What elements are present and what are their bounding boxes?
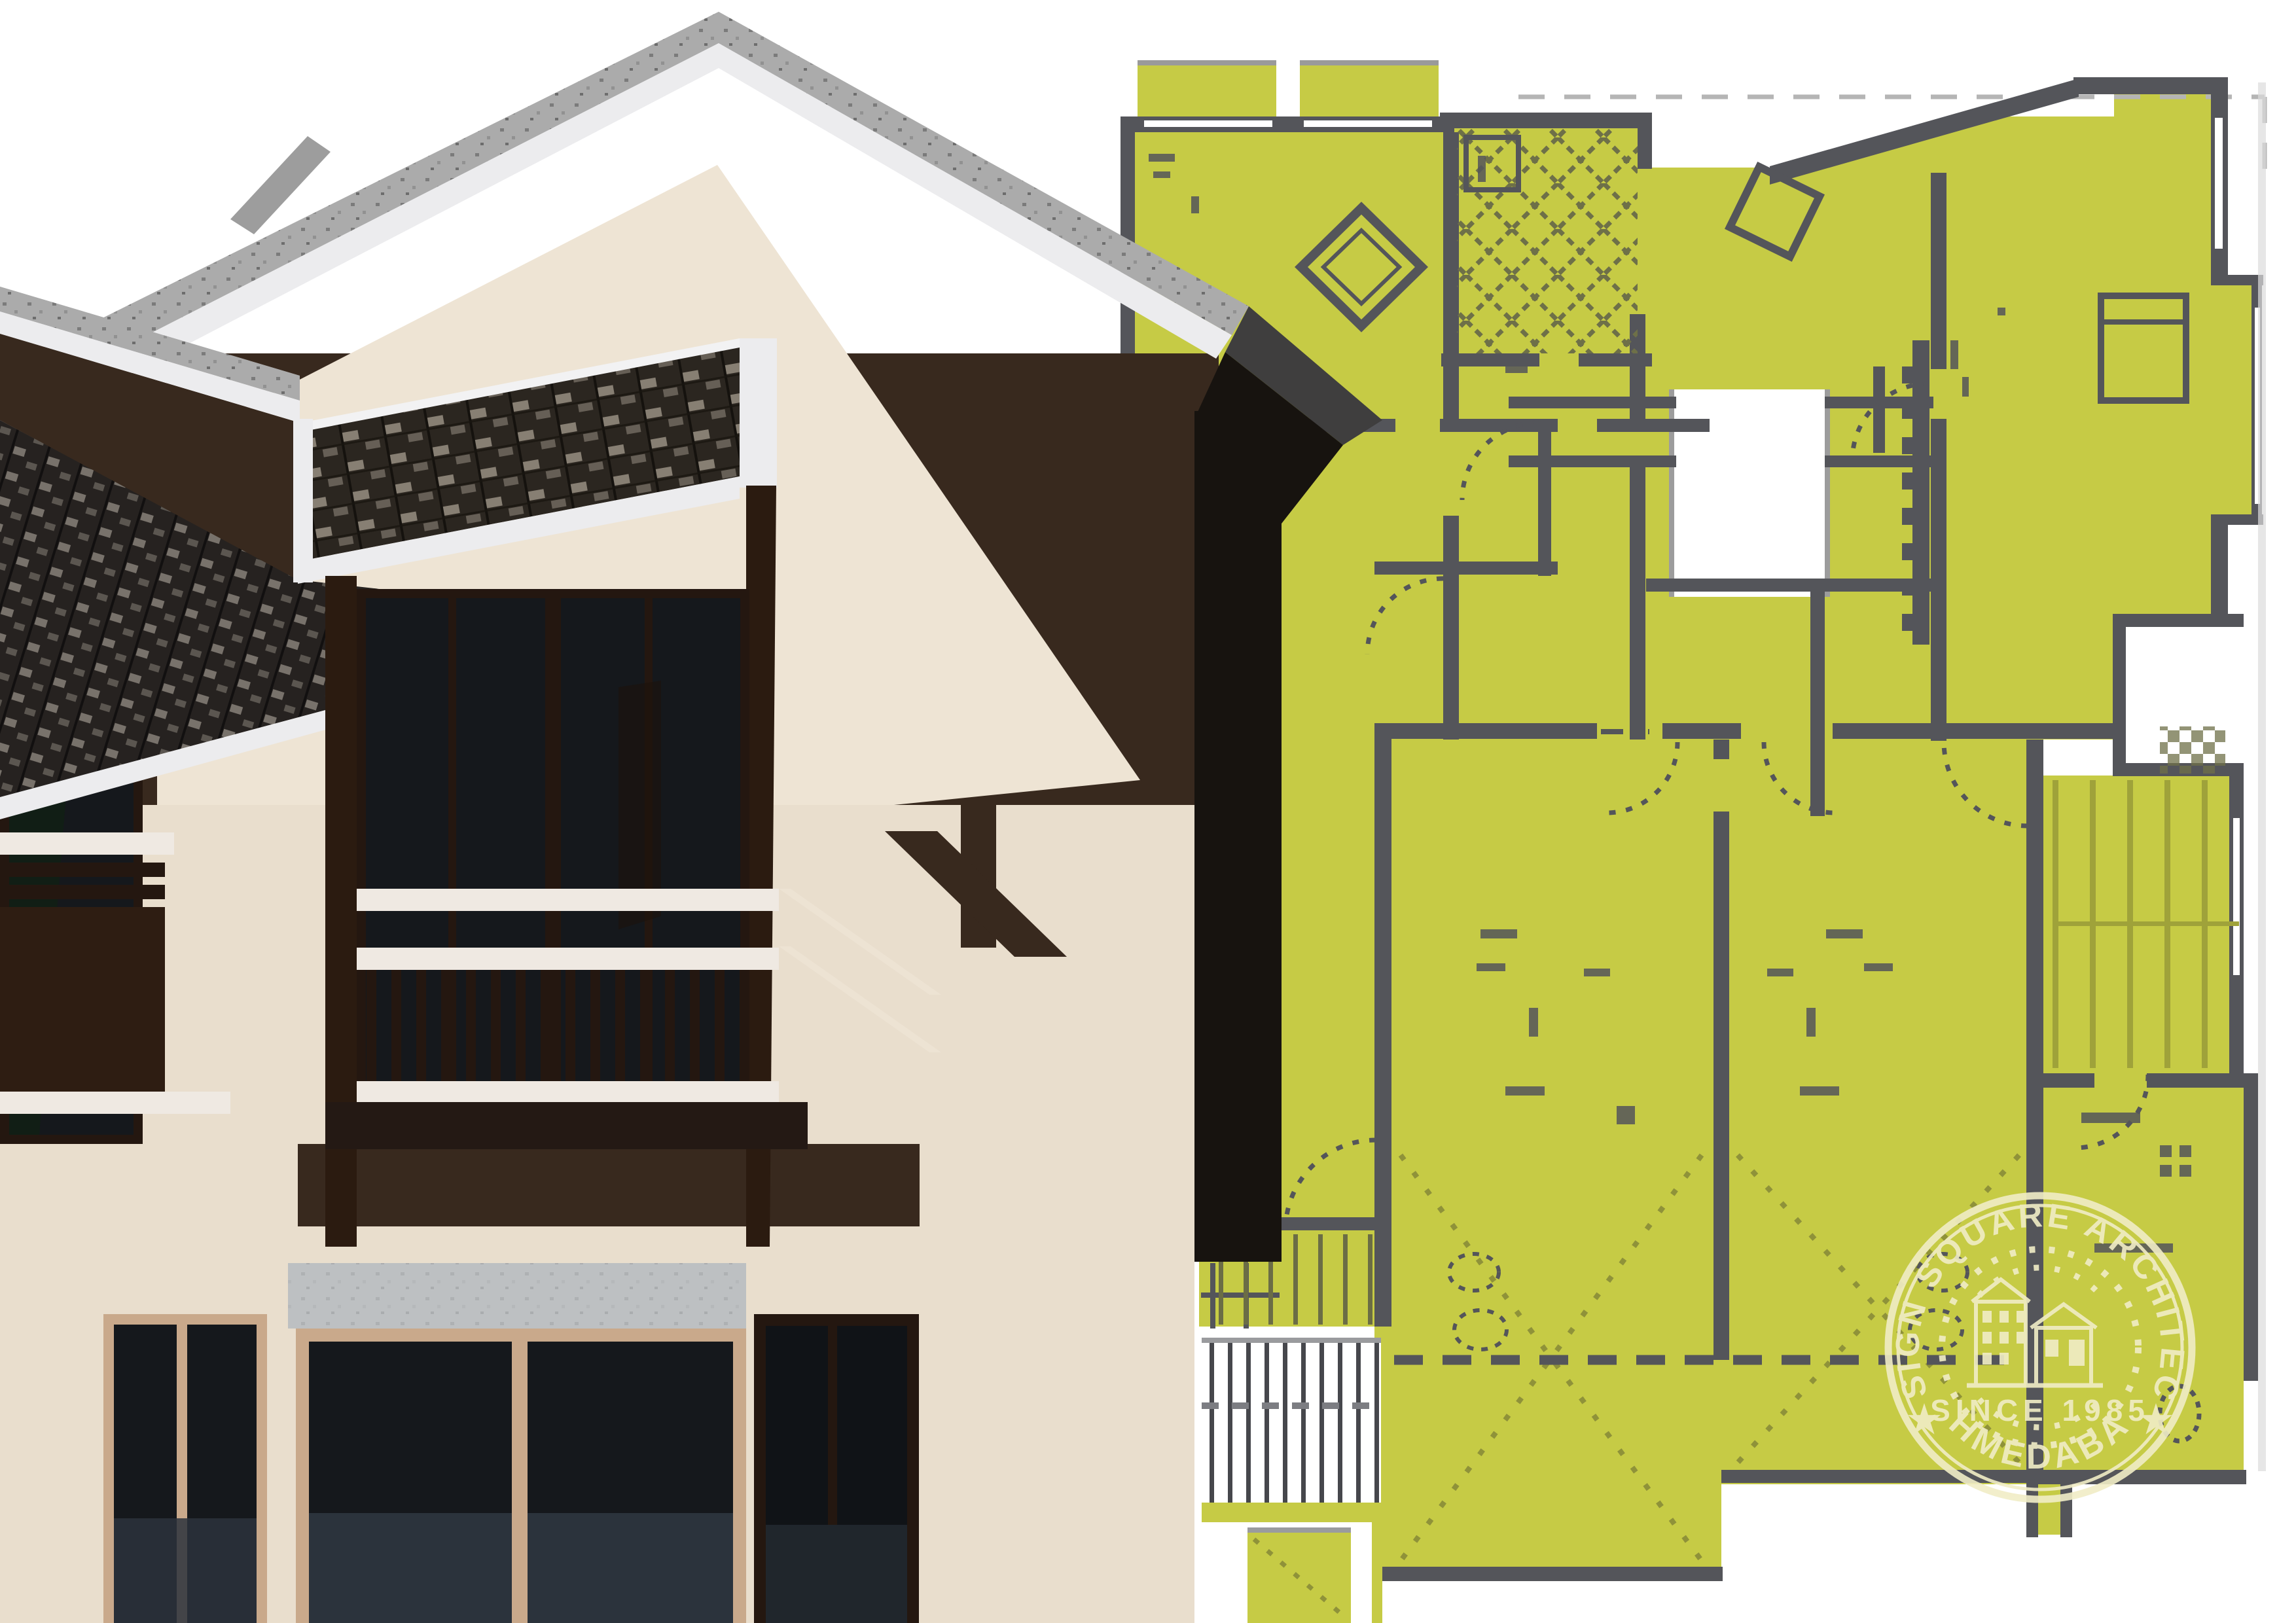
rail-panel <box>0 907 165 1092</box>
drawing-canvas: DESIGN SQUARE ARCHITECTS AHMEDABAD ★ ★ S… <box>0 0 2296 1623</box>
ground-window-left <box>103 1314 267 1623</box>
ground-floor <box>103 1263 919 1623</box>
checker-tile <box>2160 726 2225 774</box>
plan-balcony-railing <box>1202 1338 1382 1623</box>
stamp-since-text: SINCE 1985 <box>1930 1393 2150 1427</box>
ground-door <box>296 1329 746 1623</box>
awning-fascia-right <box>740 338 777 488</box>
architectural-sheet: DESIGN SQUARE ARCHITECTS AHMEDABAD ★ ★ S… <box>0 0 2296 1623</box>
house-side-shadow-band <box>1194 411 1282 1262</box>
under-balcony-shadow <box>298 1144 920 1226</box>
rail-top <box>0 832 174 855</box>
chajja-projection <box>1138 64 1276 116</box>
chajja-projection <box>1300 64 1439 116</box>
balcony-beam <box>325 1102 808 1149</box>
ground-window-right <box>754 1314 919 1623</box>
rail-bottom <box>0 1092 230 1114</box>
